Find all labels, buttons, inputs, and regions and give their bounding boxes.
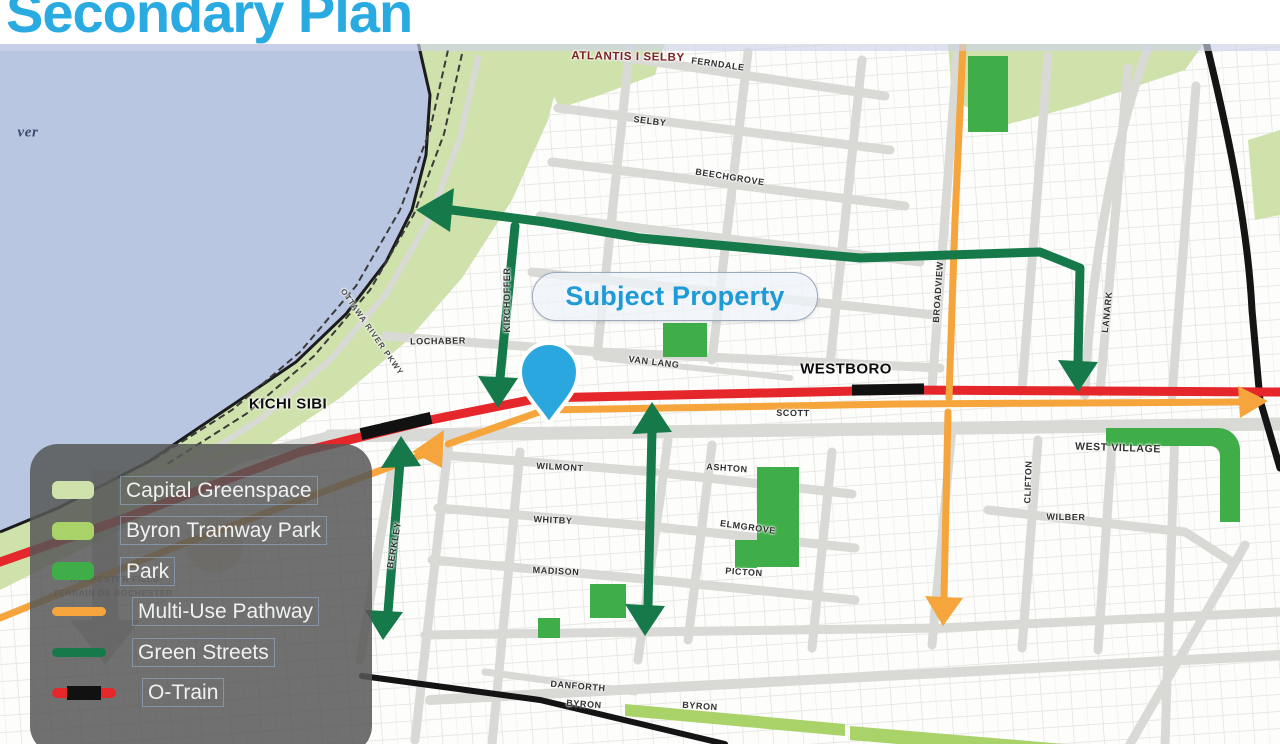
street-label-lochaber: LOCHABER: [410, 336, 466, 347]
subject-property-label: Subject Property: [565, 281, 784, 312]
street-label-whitby: WHITBY: [533, 514, 573, 526]
westboro-station-marker: [852, 383, 924, 395]
legend-label: Byron Tramway Park: [120, 516, 327, 545]
street-label-scott: SCOTT: [776, 408, 810, 419]
legend-label: Green Streets: [132, 638, 275, 667]
river-label: ver: [18, 125, 39, 142]
street-label-kirchoffer: KIRCHOFFER: [502, 268, 512, 333]
legend-item-byron-tramway-park: Byron Tramway Park: [52, 511, 372, 552]
capital-greenspace-swatch: [52, 481, 94, 499]
station-label-westboro: WESTBORO: [800, 361, 892, 378]
legend-item-multi-use-pathway: Multi-Use Pathway: [52, 592, 372, 633]
park-swatch: [52, 562, 94, 580]
byron-tramway-park-swatch: [52, 522, 94, 540]
page-title: Secondary Plan: [6, 0, 412, 41]
legend-label: Capital Greenspace: [120, 476, 318, 505]
street-label-clifton: CLIFTON: [1022, 460, 1033, 503]
map-legend: Capital Greenspace Byron Tramway Park Pa…: [30, 444, 372, 744]
secondary-plan-page: Secondary Plan FERNDALE SELBY BEECHGROVE…: [0, 0, 1280, 744]
map-top-edge: [0, 44, 1280, 51]
subject-property-callout: Subject Property: [532, 272, 818, 321]
legend-label: Multi-Use Pathway: [132, 597, 319, 626]
otrain-swatch-black-bar: [67, 686, 101, 700]
area-label-atlantis-selby: ATLANTIS I SELBY: [571, 50, 685, 64]
legend-item-green-streets: Green Streets: [52, 632, 372, 673]
legend-item-park: Park: [52, 551, 372, 592]
page-header: Secondary Plan: [0, 0, 1280, 44]
legend-label: Park: [120, 557, 175, 586]
station-label-kichi-sibi: KICHI SIBI: [249, 396, 327, 413]
otrain-swatch: [52, 688, 116, 698]
legend-label: O-Train: [142, 678, 224, 707]
street-label-wilber: WILBER: [1046, 512, 1085, 523]
green-streets-swatch: [52, 648, 106, 657]
legend-item-capital-greenspace: Capital Greenspace: [52, 470, 372, 511]
multi-use-pathway-swatch: [52, 607, 106, 616]
legend-item-otrain: O-Train: [52, 673, 372, 714]
